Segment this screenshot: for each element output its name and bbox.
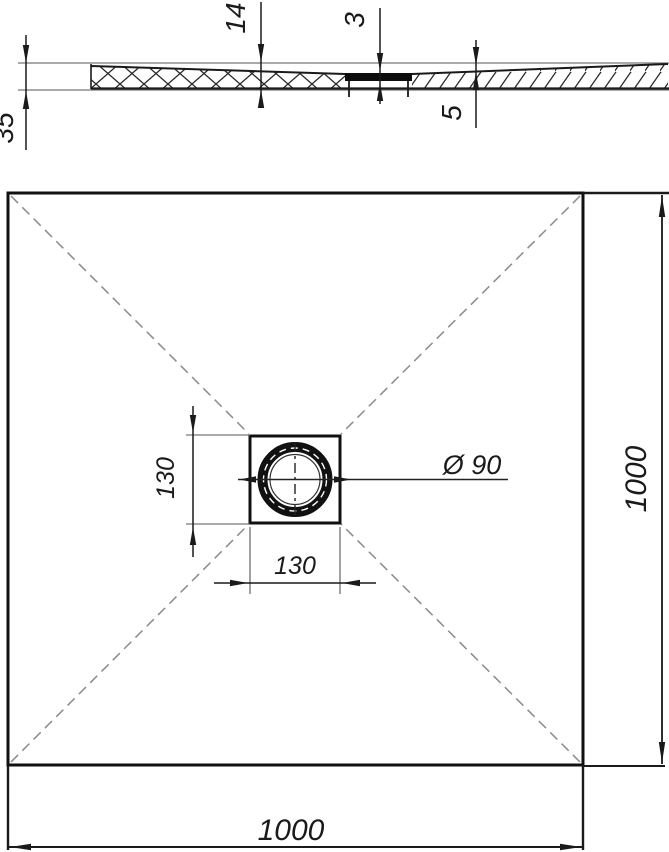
drawing-svg: 35 14 3 5 xyxy=(0,0,669,852)
arrowhead xyxy=(334,476,351,482)
dimension-diameter-label: Ø 90 xyxy=(442,450,502,480)
arrowhead xyxy=(342,580,360,586)
arrowhead xyxy=(230,580,248,586)
arrowhead xyxy=(473,47,479,65)
dimension-5-label: 5 xyxy=(436,105,467,121)
dimension-14-label: 14 xyxy=(220,2,251,33)
dimension-3-label: 3 xyxy=(339,12,370,28)
dimension-130-vertical: 130 xyxy=(152,406,250,557)
technical-drawing-canvas: 35 14 3 5 xyxy=(0,0,669,852)
plan-view: Ø 90 130 130 1000 xyxy=(8,193,669,850)
arrowhead xyxy=(239,476,256,482)
dimension-1000-vertical-label: 1000 xyxy=(620,445,653,512)
arrowhead xyxy=(23,91,29,109)
arrowhead xyxy=(659,196,665,217)
dimension-130-horizontal-label: 130 xyxy=(274,552,316,580)
arrowhead xyxy=(258,44,264,62)
arrowhead xyxy=(560,844,581,850)
section-body-right-hatch xyxy=(412,64,668,88)
arrowhead xyxy=(377,83,383,101)
arrowhead xyxy=(10,844,31,850)
dimension-130-vertical-label: 130 xyxy=(152,457,180,499)
arrowhead xyxy=(659,742,665,763)
dimension-35-label: 35 xyxy=(0,112,19,144)
dimension-35: 35 xyxy=(0,35,29,150)
dimension-1000-horizontal: 1000 xyxy=(8,766,583,850)
arrowhead xyxy=(190,415,196,433)
arrowhead xyxy=(23,45,29,63)
dimension-1000-horizontal-label: 1000 xyxy=(258,814,325,847)
dimension-130-horizontal: 130 xyxy=(214,527,376,594)
arrowhead xyxy=(190,527,196,545)
arrowhead xyxy=(377,53,383,71)
section-view: 35 14 3 5 xyxy=(0,2,669,150)
dimension-1000-vertical: 1000 xyxy=(583,193,669,766)
arrowhead xyxy=(258,90,264,108)
section-drain-cover xyxy=(345,73,412,81)
dimension-14: 14 xyxy=(220,2,264,108)
